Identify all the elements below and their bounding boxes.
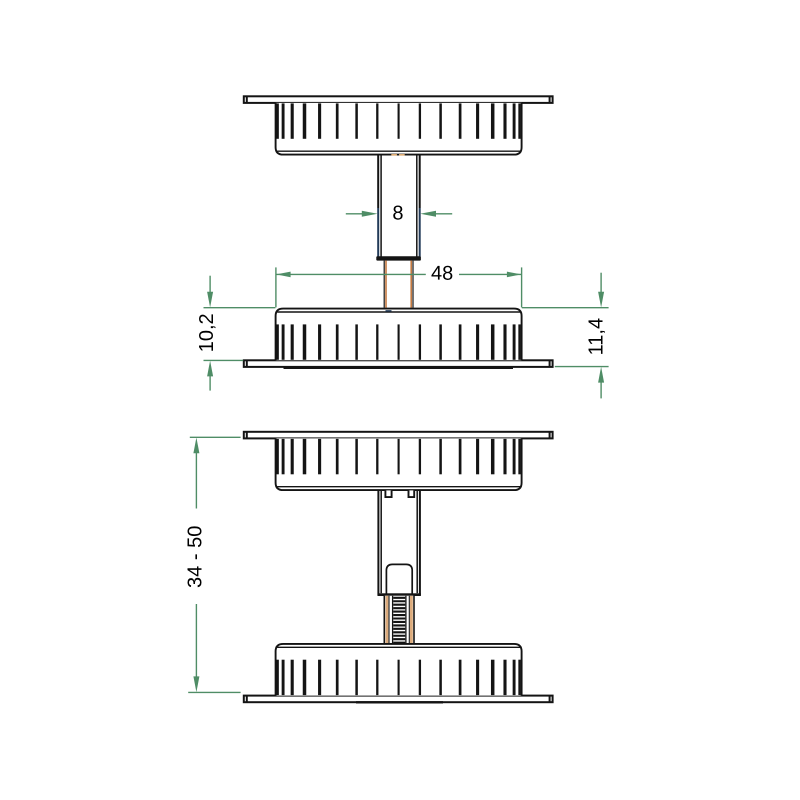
svg-text:8: 8 bbox=[392, 202, 403, 224]
svg-text:11,4: 11,4 bbox=[586, 318, 608, 355]
svg-text:34 - 50: 34 - 50 bbox=[185, 526, 207, 588]
svg-text:48: 48 bbox=[431, 263, 453, 285]
svg-text:10,2: 10,2 bbox=[196, 313, 218, 352]
